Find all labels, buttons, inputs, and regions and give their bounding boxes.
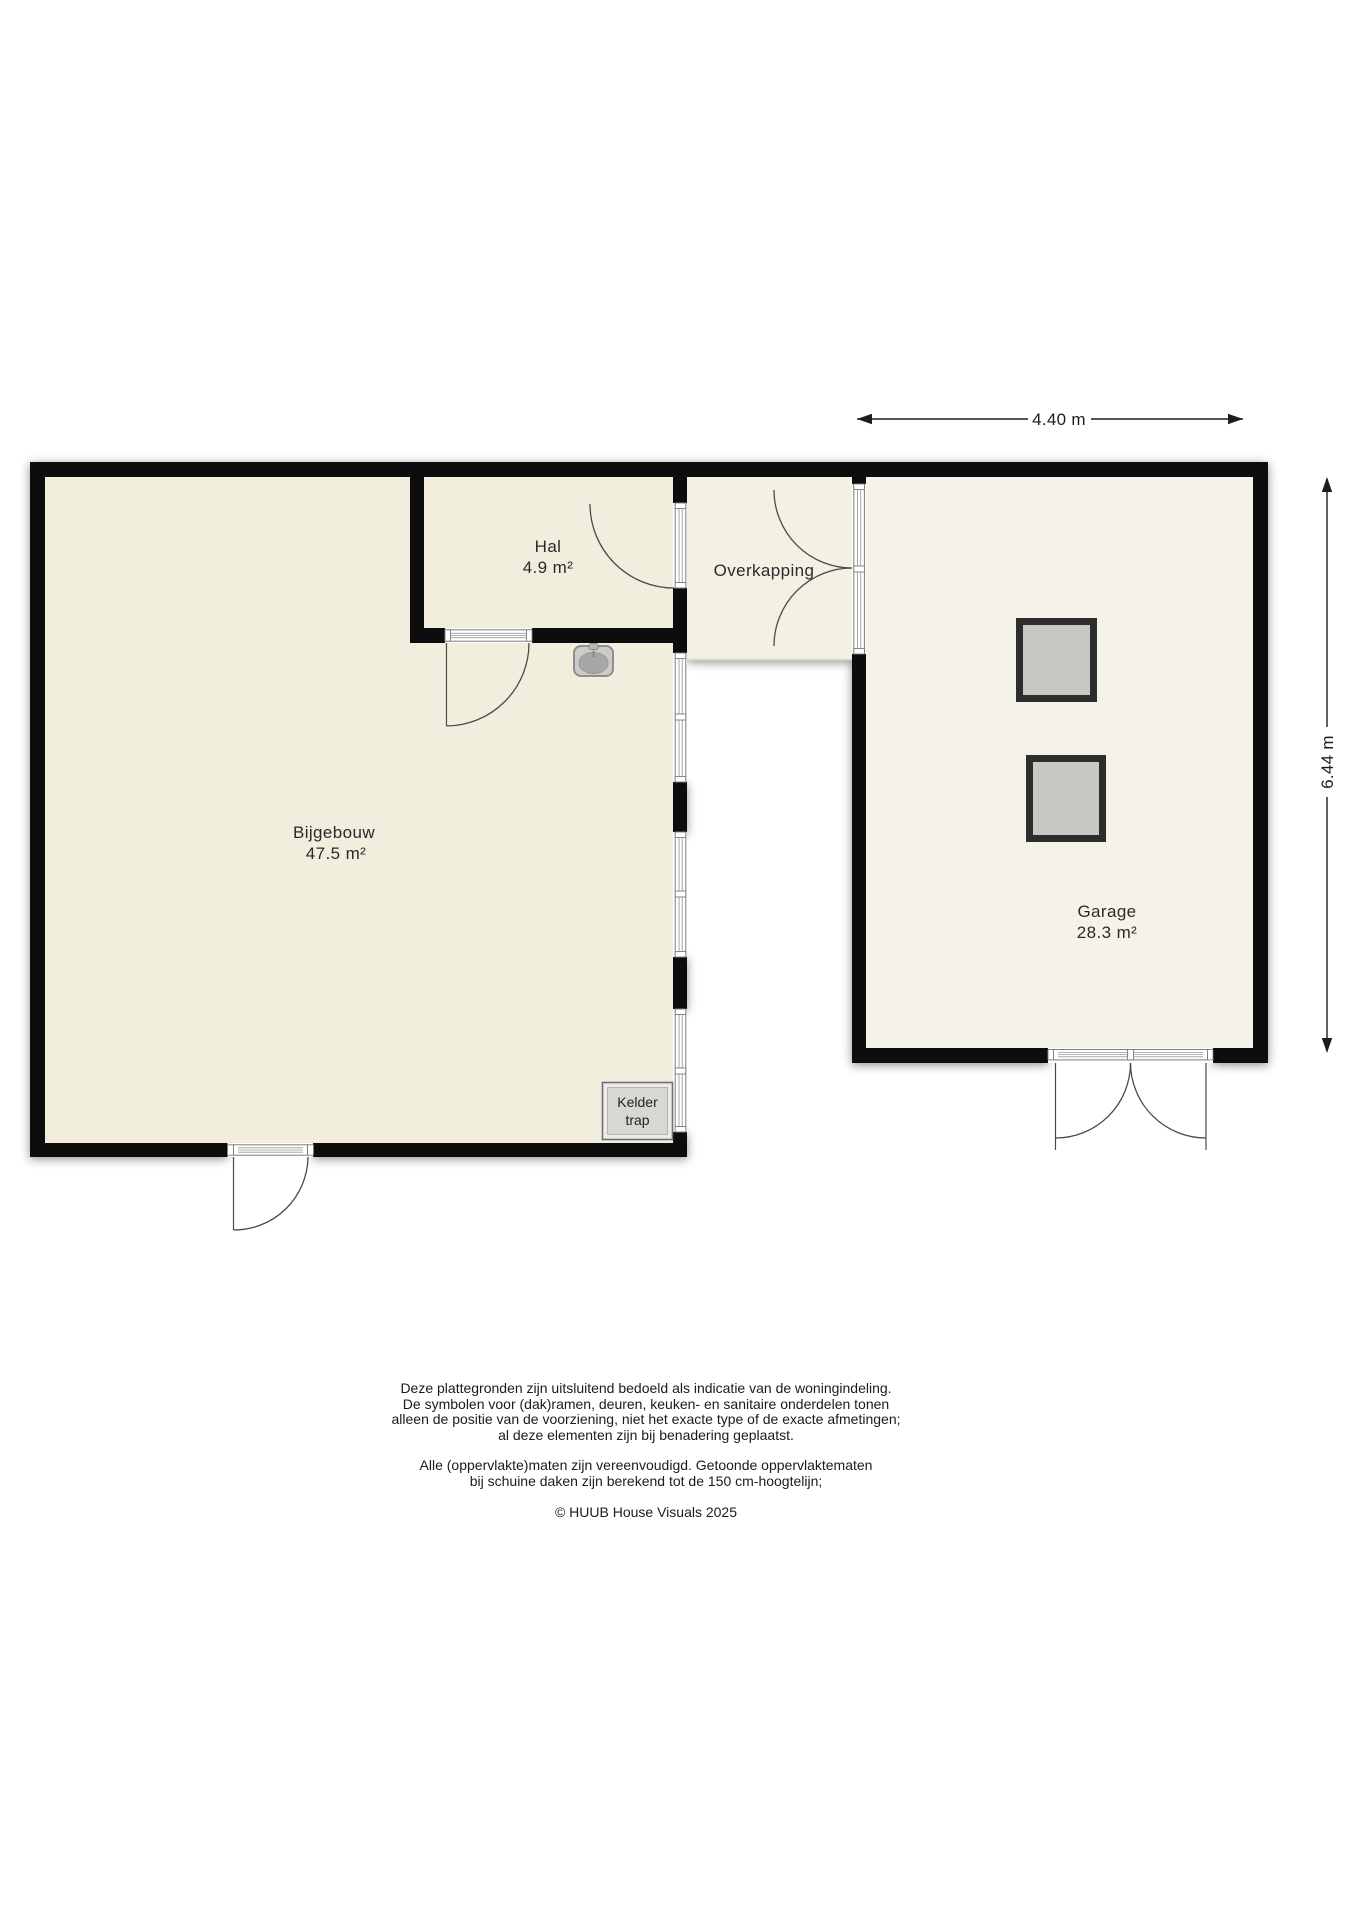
skylight-icon [1030, 759, 1103, 839]
wall-bijgebouw-right-seg2 [673, 588, 687, 653]
wall-hal-left [410, 462, 424, 643]
wall-hal-bottom-right [532, 628, 687, 643]
wall-left [30, 462, 45, 1157]
dimension-vertical: 6.44 m [1318, 477, 1337, 1053]
door-swing-arc [234, 1157, 309, 1230]
floorplan-page: Kelder trap Bijgebouw 47.5 m² Hal 4.9 m²… [0, 0, 1358, 1920]
wall-bijgebouw-bottom-right [313, 1143, 687, 1157]
room-label-hal: Hal [535, 537, 562, 556]
disclaimer-line: al deze elementen zijn bij benadering ge… [246, 1428, 1046, 1444]
disclaimer-line: Deze plattegronden zijn uitsluitend bedo… [246, 1381, 1046, 1397]
footer-text: Deze plattegronden zijn uitsluitend bedo… [246, 1366, 1046, 1520]
disclaimer-line: alleen de positie van de voorziening, ni… [246, 1412, 1046, 1428]
kelder-trap-box: Kelder trap [603, 1083, 673, 1140]
arrowhead-up-icon [1322, 477, 1332, 492]
room-label-bijgebouw: Bijgebouw [293, 823, 375, 842]
dimension-height-label: 6.44 m [1318, 735, 1337, 789]
floor-plan-canvas: Kelder trap Bijgebouw 47.5 m² Hal 4.9 m²… [0, 0, 1358, 1920]
window [673, 653, 687, 782]
room-label-overkapping: Overkapping [714, 561, 815, 580]
room-area-garage: 28.3 m² [1077, 923, 1137, 942]
dimension-horizontal: 4.40 m [857, 410, 1243, 429]
windows [673, 653, 687, 1132]
arrowhead-right-icon [1228, 414, 1243, 424]
wall-garage-bottom-left [852, 1048, 1048, 1063]
disclaimer-line: De symbolen voor (dak)ramen, deuren, keu… [246, 1397, 1046, 1413]
room-area-hal: 4.9 m² [523, 558, 574, 577]
wall-top [30, 462, 1268, 477]
door-swing-arc [1056, 1063, 1131, 1138]
wall-bijgebouw-bottom-left [30, 1143, 228, 1157]
wall-hal-bottom-left [410, 628, 445, 643]
kelder-trap-label-line2: trap [625, 1112, 649, 1128]
measurements-line: Alle (oppervlakte)maten zijn vereenvoudi… [246, 1458, 1046, 1474]
window [673, 832, 687, 957]
door-garage-double [1048, 1048, 1213, 1150]
arrowhead-left-icon [857, 414, 872, 424]
kelder-trap-label-line1: Kelder [617, 1094, 658, 1110]
arrowhead-down-icon [1322, 1038, 1332, 1053]
skylight-icon [1020, 622, 1094, 699]
copyright-line: © HUUB House Visuals 2025 [246, 1505, 1046, 1521]
measurements-line: bij schuine daken zijn berekend tot de 1… [246, 1474, 1046, 1490]
wall-garage-right [1253, 462, 1268, 1063]
wall-bijgebouw-right-seg5 [673, 1132, 687, 1157]
room-area-bijgebouw: 47.5 m² [306, 844, 366, 863]
dimension-width-label: 4.40 m [1032, 410, 1086, 429]
wall-garage-left-bottom [852, 654, 866, 1063]
wall-garage-left-top [852, 462, 866, 484]
door-bijgebouw-exterior [228, 1143, 314, 1230]
sink-icon [574, 644, 613, 677]
door-swing-arc [1131, 1063, 1207, 1138]
wall-bijgebouw-right-seg4 [673, 957, 687, 1009]
wall-bijgebouw-right-seg1 [673, 462, 687, 503]
window [673, 1009, 687, 1132]
room-label-garage: Garage [1077, 902, 1136, 921]
wall-bijgebouw-right-seg3 [673, 782, 687, 832]
